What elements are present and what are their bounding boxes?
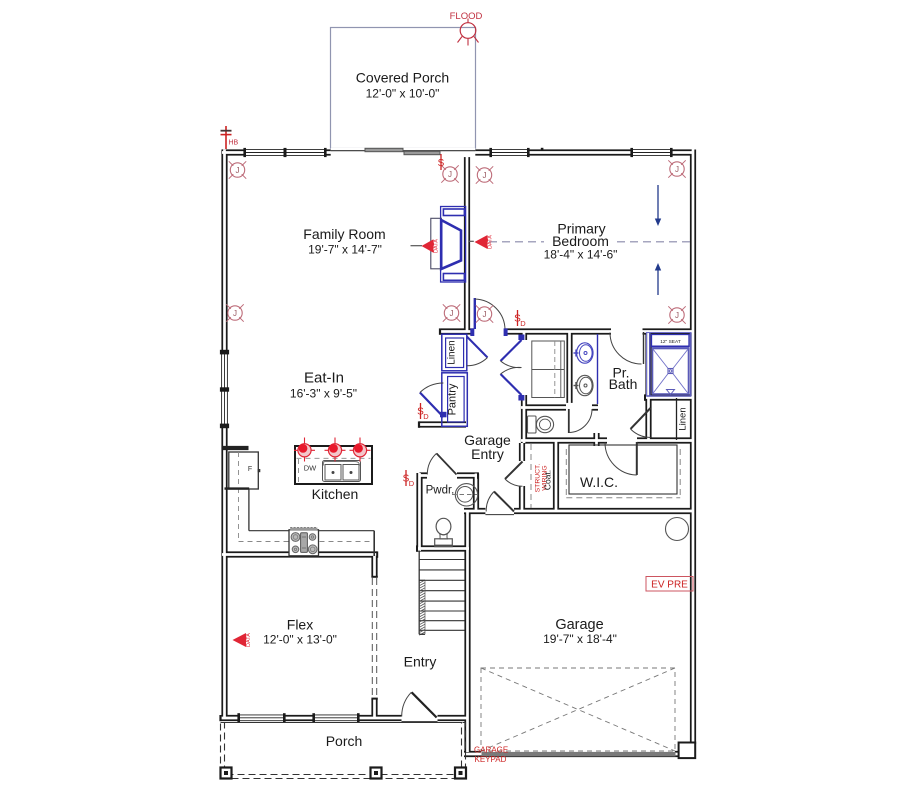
- svg-text:Pwdr.: Pwdr.: [426, 485, 455, 497]
- svg-text:J: J: [675, 165, 679, 174]
- svg-text:Entry: Entry: [471, 446, 504, 462]
- svg-text:Bedroom: Bedroom: [552, 233, 609, 249]
- svg-text:12'-0" x 13'-0": 12'-0" x 13'-0": [263, 633, 337, 647]
- svg-text:FLOOD: FLOOD: [450, 11, 483, 22]
- svg-text:Family Room: Family Room: [303, 226, 385, 242]
- svg-text:Covered Porch: Covered Porch: [356, 70, 449, 86]
- svg-text:DW: DW: [304, 464, 317, 473]
- svg-text:Linen: Linen: [678, 407, 689, 430]
- svg-text:Flex: Flex: [287, 617, 313, 633]
- svg-text:Coat.: Coat.: [543, 470, 553, 490]
- svg-text:S: S: [438, 158, 445, 169]
- svg-text:STRUCT.: STRUCT.: [535, 464, 542, 493]
- svg-text:D: D: [409, 479, 415, 488]
- svg-text:12" SEAT: 12" SEAT: [660, 339, 681, 345]
- svg-text:F: F: [248, 466, 252, 473]
- svg-text:EV PRE: EV PRE: [651, 580, 688, 591]
- svg-text:HB: HB: [229, 140, 239, 147]
- svg-text:16'-3" x 9'-5": 16'-3" x 9'-5": [290, 387, 357, 401]
- svg-text:KEYPAD: KEYPAD: [475, 755, 507, 764]
- svg-text:12'-0" x 10'-0": 12'-0" x 10'-0": [366, 87, 440, 101]
- svg-text:Kitchen: Kitchen: [312, 486, 359, 502]
- svg-text:J: J: [483, 171, 487, 180]
- svg-text:Pantry: Pantry: [447, 383, 459, 415]
- svg-text:J: J: [233, 309, 237, 318]
- svg-text:18'-4" x 14'-6": 18'-4" x 14'-6": [544, 248, 618, 262]
- svg-text:W.I.C.: W.I.C.: [580, 474, 618, 490]
- svg-text:D: D: [423, 412, 429, 421]
- svg-text:Garage: Garage: [555, 617, 603, 633]
- svg-text:DATA: DATA: [488, 235, 494, 249]
- svg-text:Entry: Entry: [404, 654, 437, 670]
- svg-text:Eat-In: Eat-In: [304, 370, 344, 387]
- svg-text:D: D: [520, 319, 526, 328]
- svg-text:J: J: [675, 311, 679, 320]
- svg-text:19'-7" x 18'-4": 19'-7" x 18'-4": [543, 632, 617, 646]
- svg-text:J: J: [236, 166, 240, 175]
- svg-text:DATA: DATA: [246, 633, 252, 647]
- svg-text:J: J: [450, 309, 454, 318]
- svg-text:Bath: Bath: [609, 376, 638, 392]
- svg-text:Linen: Linen: [447, 340, 458, 364]
- svg-text:J: J: [483, 310, 487, 319]
- svg-text:GARAGE: GARAGE: [474, 746, 508, 755]
- svg-text:DATA: DATA: [434, 239, 440, 253]
- svg-text:Porch: Porch: [326, 733, 363, 749]
- svg-text:19'-7" x 14'-7": 19'-7" x 14'-7": [308, 243, 382, 257]
- svg-text:J: J: [448, 170, 452, 179]
